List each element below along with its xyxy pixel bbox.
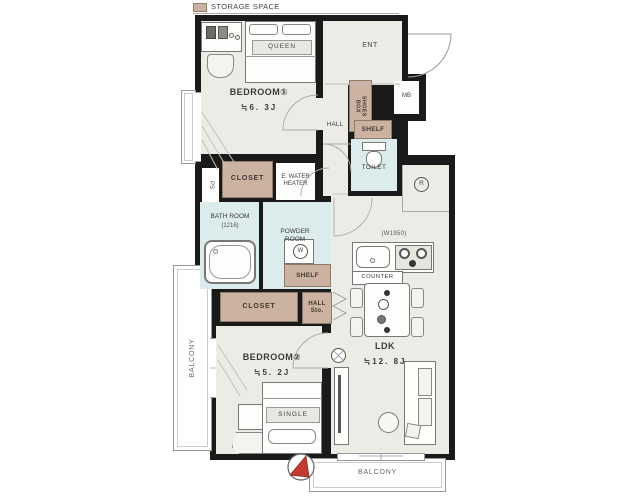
glasses-icon <box>229 33 234 38</box>
single-pillow <box>268 429 316 444</box>
single-bed-label: SINGLE <box>266 407 320 423</box>
pipe-space-label: PS <box>205 175 215 195</box>
table-item-dot <box>384 290 390 296</box>
kitchen-sink <box>356 246 390 268</box>
sofa-cushion-1 <box>418 368 432 396</box>
tv-board <box>334 367 349 445</box>
queen-pillow-left <box>249 24 278 35</box>
table-item-plate <box>378 299 389 310</box>
hall-label: HALL <box>320 120 350 130</box>
bathroom-name: BATH ROOM <box>202 212 258 222</box>
dining-chair-1 <box>350 288 363 308</box>
queen-bed-label: QUEEN <box>252 40 312 55</box>
kitchen-width-label: (W1950) <box>368 230 420 240</box>
stove-burner-right <box>416 248 427 259</box>
bedroom1-name: BEDROOM① <box>208 86 310 100</box>
bedroom1-window <box>195 92 201 162</box>
queen-pillow-right <box>282 24 311 35</box>
table-item-dot-2 <box>384 327 390 333</box>
bedroom1-bay-window-inner <box>184 93 193 161</box>
hall-storage: HALL Sto. <box>302 292 332 324</box>
ldk-size: ≒12. 8J <box>350 356 420 368</box>
hall-floor <box>323 85 348 196</box>
glasses-icon-2 <box>235 35 240 40</box>
hall-ldk-opening <box>332 190 348 198</box>
bedroom2-door-gap <box>322 333 331 368</box>
bedroom2-window <box>210 338 216 398</box>
bedroom1-chair <box>207 54 234 78</box>
deco-ball <box>331 348 346 363</box>
dining-chair-4 <box>411 317 424 337</box>
toilet-label: TOILET <box>351 163 397 173</box>
bedroom2-size: ≒5. 2J <box>221 367 323 379</box>
faucet-icon <box>370 258 375 263</box>
ldk-name: LDK <box>355 340 415 353</box>
ldk-balcony-door <box>337 453 425 461</box>
bathroom-size: (1216) <box>202 222 258 231</box>
balcony-left-label: BALCONY <box>185 328 201 388</box>
meter-box-label: MB <box>394 88 419 106</box>
queen-blanket-line <box>245 56 316 57</box>
dining-chair-2 <box>350 317 363 337</box>
single-blanket-line <box>262 398 322 399</box>
book-stack <box>206 26 216 39</box>
bedroom1-size: ≒6. 3J <box>208 102 310 114</box>
legend-underline <box>193 13 399 14</box>
closet-bedroom1: CLOSET <box>222 161 273 198</box>
entrance-door-arc <box>408 34 451 77</box>
shelf-powder: SHELF <box>284 264 331 287</box>
book-stack-2 <box>218 26 228 39</box>
entrance-label: ENT <box>352 40 388 52</box>
fridge-symbol: R <box>414 177 429 192</box>
balcony-bottom-label: BALCONY <box>339 466 416 480</box>
sofa-cushion-2 <box>418 398 432 426</box>
shoes-box-label: SHOES BOX <box>354 96 367 117</box>
bedroom2-name: BEDROOM② <box>221 351 323 365</box>
table-item-bowl <box>377 315 386 324</box>
dining-chair-3 <box>411 288 424 308</box>
powder-room-label: POWDER ROOM <box>265 226 325 246</box>
legend-label: STORAGE SPACE <box>211 1 301 13</box>
toilet-tank <box>362 142 386 151</box>
stove-burner-left <box>399 248 410 259</box>
bathtub-drain <box>213 249 218 254</box>
bedroom2-desk <box>238 404 264 430</box>
water-heater-label: E. WATER HEATER <box>276 166 315 196</box>
legend-swatch <box>193 3 207 12</box>
ottoman <box>378 412 399 433</box>
tv-icon <box>338 375 341 433</box>
washer-symbol: W <box>293 244 308 259</box>
closet-bedroom2: CLOSET <box>220 292 298 322</box>
sofa-side-table <box>405 423 421 439</box>
stove-burner-small <box>409 260 416 267</box>
floor-plan: STORAGE SPACE BALCONY BALCONY SHOES BOX … <box>0 0 625 500</box>
entrance-floor <box>323 21 402 85</box>
shelf-toilet: SHELF <box>354 120 392 139</box>
